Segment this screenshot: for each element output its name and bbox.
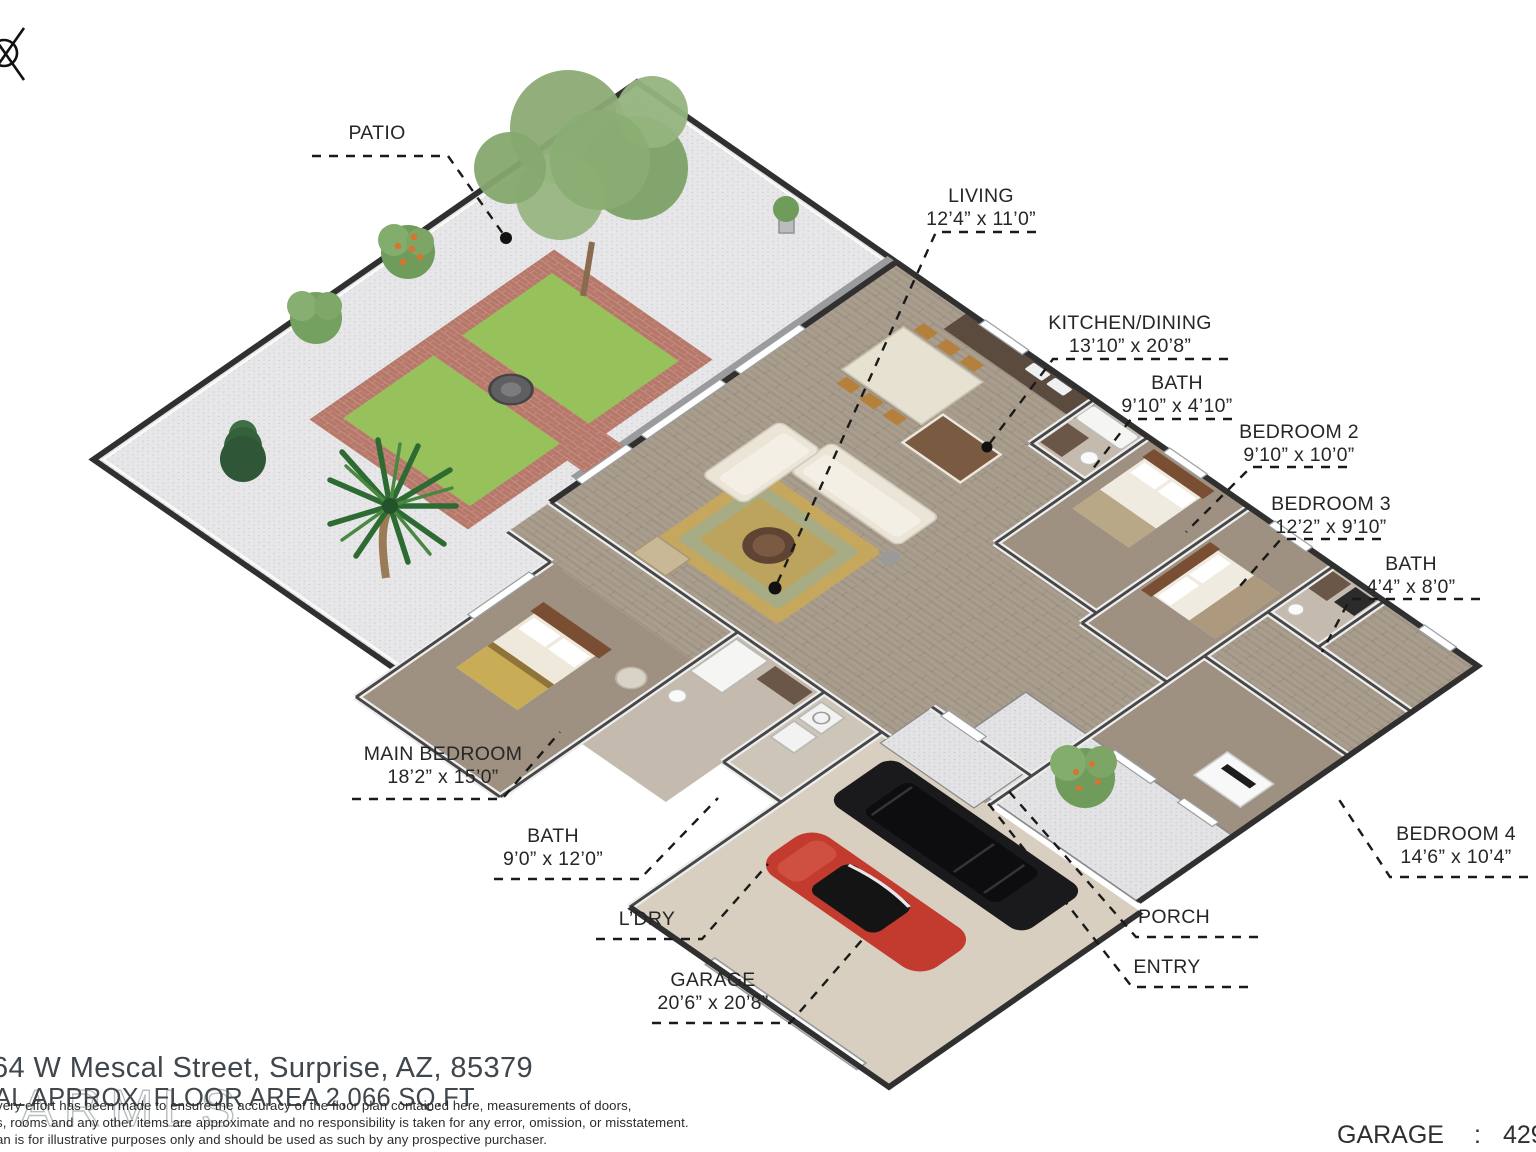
label-porch: PORCH xyxy=(1138,906,1210,929)
label-main-bedroom: MAIN BEDROOM18’2” x 15’0” xyxy=(364,743,523,789)
label-bedroom-2: BEDROOM 29’10” x 10’0” xyxy=(1239,421,1359,467)
floorplan-page: { "labels": { "patio": {"name": "PATIO"}… xyxy=(0,0,1536,1152)
garage-area-value: 429 S xyxy=(1503,1121,1536,1149)
label-entry: ENTRY xyxy=(1133,956,1200,979)
label-bath-main: BATH9’0” x 12’0” xyxy=(503,825,603,871)
label-living: LIVING12’4” x 11’0” xyxy=(926,185,1036,231)
garage-area-separator: : xyxy=(1444,1121,1503,1149)
disclaimer-line-1: very effort has been made to ensure the … xyxy=(0,1098,632,1113)
label-laundry: L’DRY xyxy=(619,908,675,931)
footer-address: 64 W Mescal Street, Surprise, AZ, 85379 xyxy=(0,1052,533,1085)
disclaimer-line-2: s, rooms and any other items are approxi… xyxy=(0,1115,689,1130)
crossed-circle-icon xyxy=(0,8,56,103)
label-bath-hall: BATH9’10” x 4’10” xyxy=(1121,372,1232,418)
label-bath-small: BATH4’4” x 8’0” xyxy=(1367,553,1456,599)
label-garage: GARAGE20’6” x 20’8” xyxy=(657,969,768,1015)
label-kitchen-dining: KITCHEN/DINING13’10” x 20’8” xyxy=(1048,312,1211,358)
garage-area-row: GARAGE:429 S xyxy=(1337,1121,1536,1150)
garage-area-label: GARAGE xyxy=(1337,1121,1444,1149)
label-bedroom-3: BEDROOM 312’2” x 9’10” xyxy=(1271,493,1391,539)
label-bedroom-4: BEDROOM 414’6” x 10’4” xyxy=(1396,823,1516,869)
label-patio: PATIO xyxy=(348,122,405,145)
plan-projection xyxy=(36,80,1490,1090)
disclaimer-line-3: an is for illustrative purposes only and… xyxy=(0,1132,547,1147)
